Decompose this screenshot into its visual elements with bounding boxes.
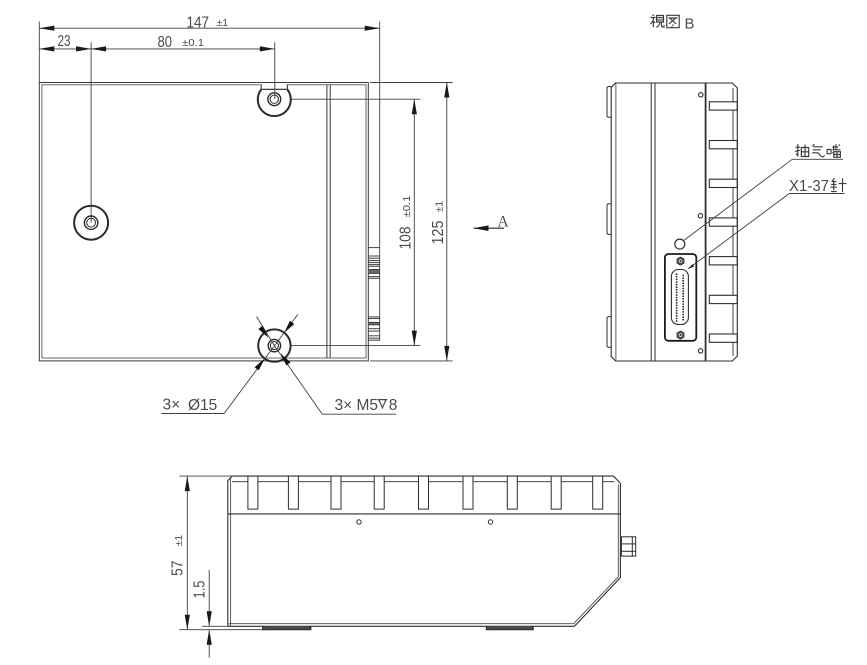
svg-text:X1-37: X1-37 <box>789 178 829 195</box>
svg-text:125: 125 <box>430 220 447 244</box>
svg-text:3×: 3× <box>163 397 181 414</box>
svg-text:80: 80 <box>158 34 173 51</box>
svg-text:±1: ±1 <box>434 201 446 213</box>
svg-text:57: 57 <box>170 560 187 576</box>
svg-text:1.5: 1.5 <box>192 580 209 598</box>
svg-text:A: A <box>498 214 510 231</box>
svg-text:8: 8 <box>389 397 398 414</box>
svg-text:±0.1: ±0.1 <box>401 195 413 217</box>
svg-text:3× M5: 3× M5 <box>335 397 379 414</box>
svg-text:B: B <box>685 16 695 33</box>
svg-text:±1: ±1 <box>217 17 229 29</box>
svg-text:147: 147 <box>187 15 210 32</box>
svg-text:±0.1: ±0.1 <box>182 37 204 49</box>
svg-text:Ø15: Ø15 <box>188 397 217 414</box>
svg-text:108: 108 <box>398 226 415 249</box>
svg-text:23: 23 <box>58 33 71 50</box>
svg-text:±1: ±1 <box>173 535 185 547</box>
